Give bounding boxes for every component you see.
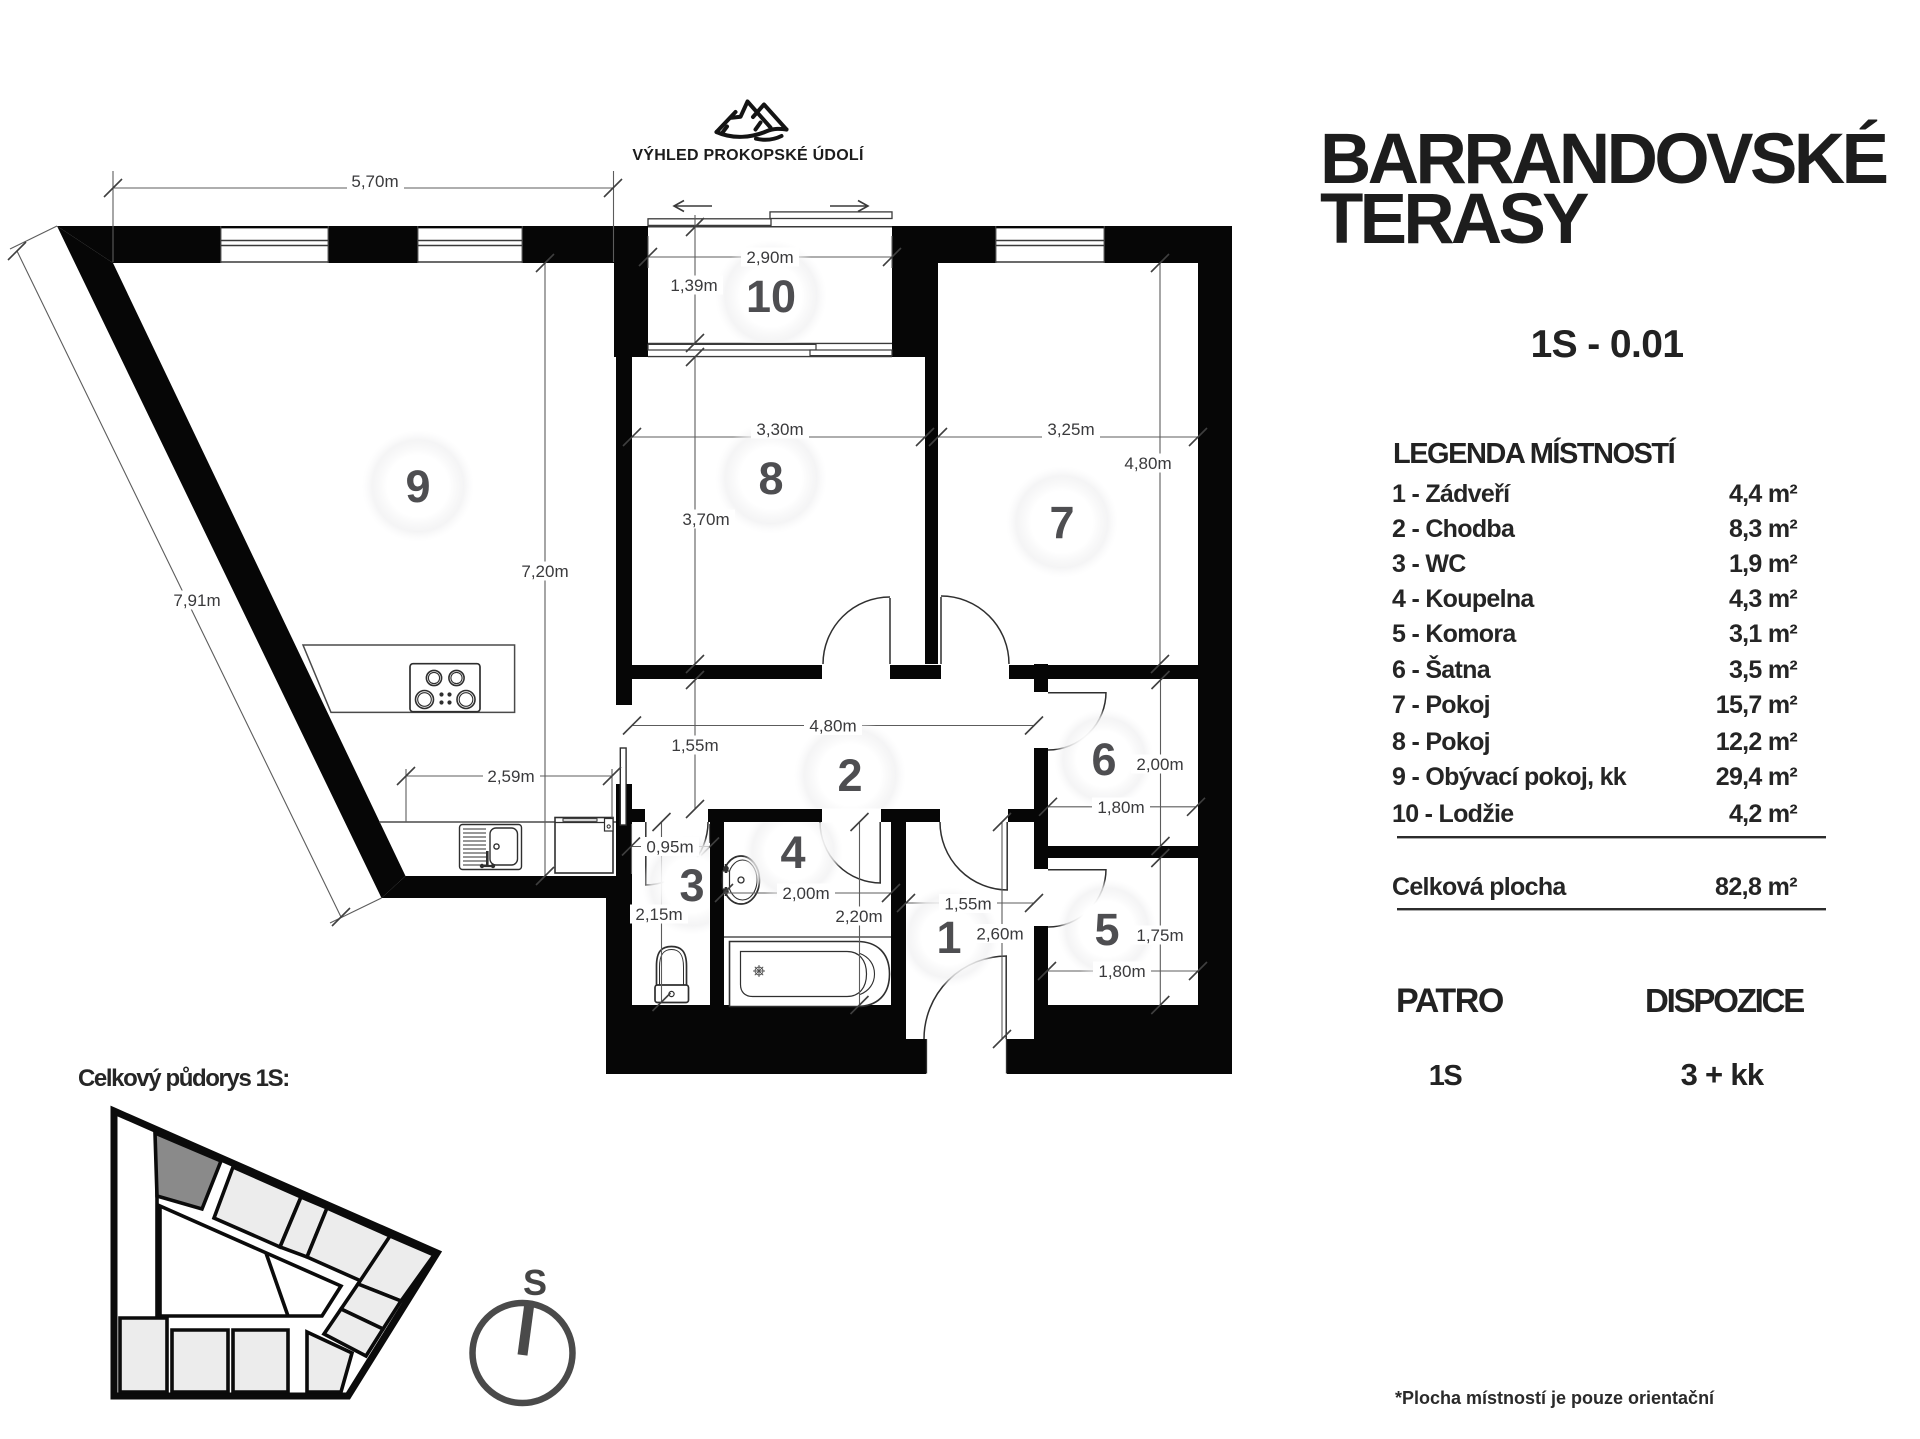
svg-text:10 - Lodžie: 10 - Lodžie	[1392, 800, 1514, 828]
svg-text:4 - Koupelna: 4 - Koupelna	[1392, 585, 1535, 613]
svg-text:3 - WC: 3 - WC	[1392, 550, 1466, 578]
svg-text:2,20m: 2,20m	[835, 907, 882, 926]
svg-text:1S: 1S	[1429, 1060, 1463, 1092]
svg-text:1,75m: 1,75m	[1136, 926, 1183, 945]
svg-text:7 - Pokoj: 7 - Pokoj	[1392, 691, 1490, 719]
svg-text:4,80m: 4,80m	[1124, 454, 1171, 473]
svg-text:TERASY: TERASY	[1320, 180, 1589, 259]
svg-text:PATRO: PATRO	[1396, 982, 1504, 1020]
svg-text:Celková plocha: Celková plocha	[1392, 873, 1567, 901]
svg-text:10: 10	[746, 271, 796, 322]
svg-text:3 + kk: 3 + kk	[1681, 1057, 1765, 1092]
svg-text:2,00m: 2,00m	[782, 884, 829, 903]
svg-text:2,60m: 2,60m	[976, 925, 1023, 944]
svg-text:5: 5	[1094, 904, 1119, 955]
svg-text:9: 9	[405, 461, 430, 512]
svg-text:29,4 m²: 29,4 m²	[1716, 763, 1798, 791]
svg-text:2,59m: 2,59m	[487, 767, 534, 786]
svg-text:1,80m: 1,80m	[1097, 798, 1144, 817]
svg-text:82,8 m²: 82,8 m²	[1715, 873, 1797, 901]
svg-text:1S - 0.01: 1S - 0.01	[1531, 323, 1684, 366]
svg-text:2 - Chodba: 2 - Chodba	[1392, 515, 1516, 543]
svg-text:3,70m: 3,70m	[682, 510, 729, 529]
svg-text:8 - Pokoj: 8 - Pokoj	[1392, 728, 1490, 756]
svg-text:6 - Šatna: 6 - Šatna	[1392, 654, 1492, 684]
svg-text:3,1 m²: 3,1 m²	[1729, 620, 1797, 648]
svg-text:12,2 m²: 12,2 m²	[1716, 728, 1798, 756]
svg-text:3,5 m²: 3,5 m²	[1729, 656, 1797, 684]
svg-text:Celkový půdorys 1S:: Celkový půdorys 1S:	[78, 1065, 289, 1092]
svg-text:5,70m: 5,70m	[351, 172, 398, 191]
svg-text:VÝHLED PROKOPSKÉ ÚDOLÍ: VÝHLED PROKOPSKÉ ÚDOLÍ	[632, 145, 864, 164]
svg-text:3,25m: 3,25m	[1047, 420, 1094, 439]
svg-text:4,3 m²: 4,3 m²	[1729, 585, 1797, 613]
svg-text:2,90m: 2,90m	[746, 248, 793, 267]
svg-text:4,4 m²: 4,4 m²	[1729, 480, 1797, 508]
svg-text:DISPOZICE: DISPOZICE	[1645, 982, 1804, 1019]
svg-text:15,7 m²: 15,7 m²	[1716, 691, 1798, 719]
svg-text:4: 4	[780, 827, 805, 878]
svg-text:S: S	[523, 1262, 547, 1303]
svg-text:1,39m: 1,39m	[670, 276, 717, 295]
svg-text:6: 6	[1091, 734, 1116, 785]
svg-text:5 - Komora: 5 - Komora	[1392, 620, 1517, 648]
svg-text:*Plocha místností je pouze ori: *Plocha místností je pouze orientační	[1395, 1388, 1715, 1408]
svg-text:1,55m: 1,55m	[944, 895, 991, 914]
svg-text:3: 3	[679, 860, 704, 911]
svg-text:8,3 m²: 8,3 m²	[1729, 515, 1797, 543]
svg-text:2,15m: 2,15m	[635, 905, 682, 924]
svg-text:4,80m: 4,80m	[809, 717, 856, 736]
svg-text:1: 1	[936, 912, 961, 963]
svg-text:7: 7	[1049, 497, 1074, 548]
svg-text:1,80m: 1,80m	[1098, 962, 1145, 981]
svg-text:3,30m: 3,30m	[756, 420, 803, 439]
svg-text:LEGENDA MÍSTNOSTÍ: LEGENDA MÍSTNOSTÍ	[1393, 436, 1677, 470]
svg-text:4,2 m²: 4,2 m²	[1729, 800, 1797, 828]
svg-text:7,91m: 7,91m	[173, 591, 220, 610]
svg-text:1,55m: 1,55m	[671, 736, 718, 755]
svg-text:1,9 m²: 1,9 m²	[1729, 550, 1797, 578]
svg-text:9 - Obývací pokoj, kk: 9 - Obývací pokoj, kk	[1392, 763, 1627, 791]
svg-text:2: 2	[837, 750, 862, 801]
svg-text:7,20m: 7,20m	[521, 562, 568, 581]
svg-text:0,95m: 0,95m	[646, 838, 693, 857]
svg-text:1 - Zádveří: 1 - Zádveří	[1392, 480, 1511, 508]
svg-text:8: 8	[758, 453, 783, 504]
svg-text:2,00m: 2,00m	[1136, 755, 1183, 774]
